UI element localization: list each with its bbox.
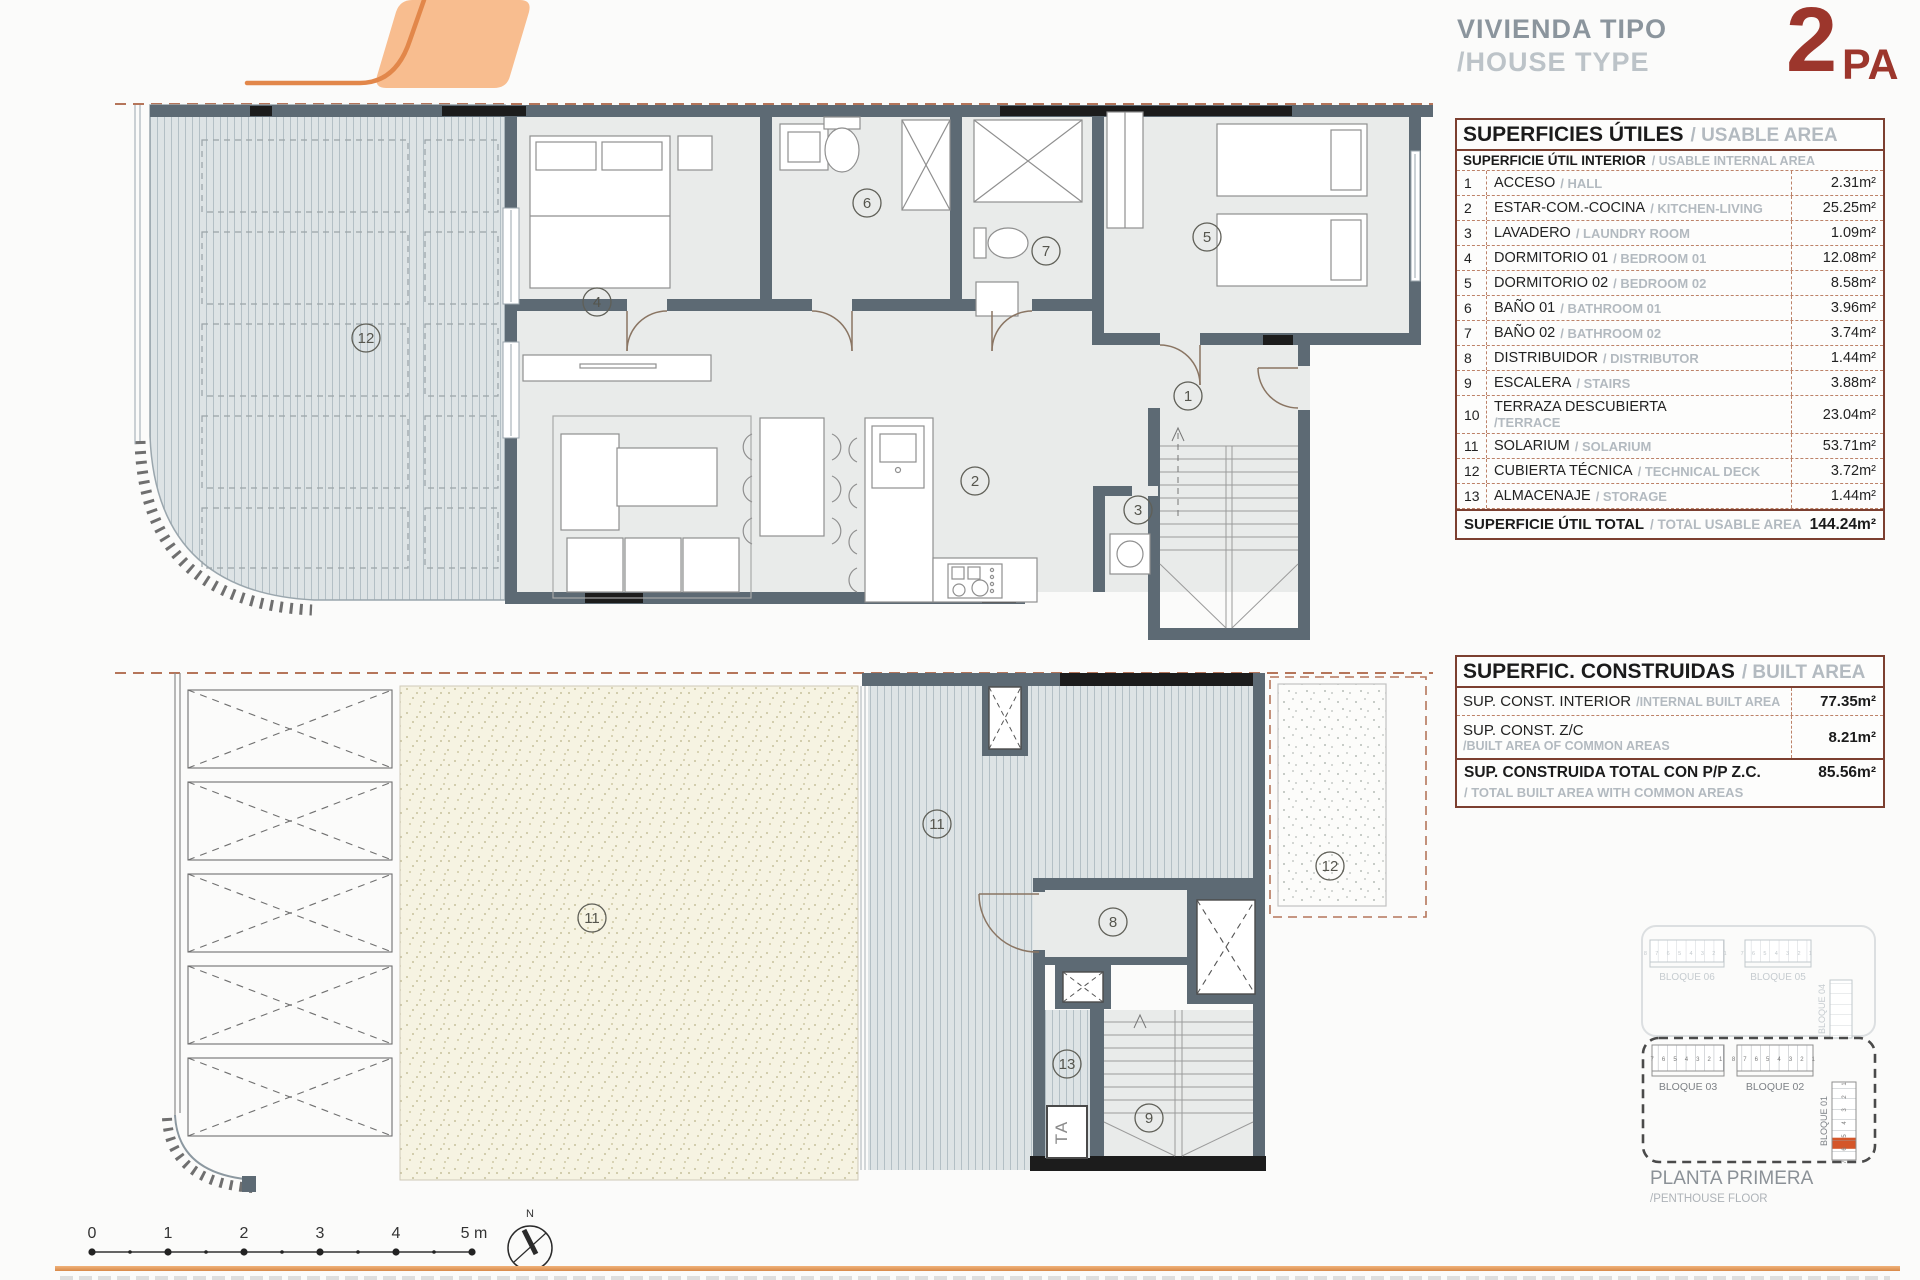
row-name-en: / BEDROOM 01 [1613,251,1706,266]
block04-label: BLOQUE 04 [1817,984,1827,1034]
row-name-en: / TECHNICAL DECK [1638,464,1761,479]
north-label: N [526,1208,534,1220]
row-num: 10 [1457,396,1487,433]
row-name-en: / SOLARIUM [1575,439,1652,454]
row-num: 5 [1457,271,1487,295]
row-name-en: /TERRACE [1494,415,1560,430]
boundary-curve [175,1115,255,1180]
row-num: 8 [1457,346,1487,370]
svg-text:5 m: 5 m [461,1225,488,1242]
row-value: 53.71m² [1791,434,1883,458]
table-row: 13ALMACENAJE/ STORAGE1.44m² [1457,484,1883,509]
row-value: 8.21m² [1791,716,1883,758]
row-value: 3.72m² [1791,459,1883,483]
table-row: 6BAÑO 01/ BATHROOM 013.96m² [1457,296,1883,321]
footer-fineprint-strip [60,1276,1890,1280]
table-row: 9ESCALERA/ STAIRS3.88m² [1457,371,1883,396]
block05-label: BLOQUE 05 [1750,972,1806,983]
keyplan-floor-es: PLANTA PRIMERA [1650,1168,1814,1189]
row-name-es: SUP. CONST. INTERIOR [1463,693,1631,710]
row-name-es: DORMITORIO 01 [1494,250,1608,266]
usable-area-table: SUPERFICIES ÚTILES / USABLE AREA SUPERFI… [1455,118,1885,540]
total-label-en: / TOTAL USABLE AREA [1650,517,1804,532]
block02-label: BLOQUE 02 [1746,1081,1805,1093]
door-gap [1033,892,1045,950]
table-row: SUP. CONST. Z/C /BUILT AREA OF COMMON AR… [1457,716,1883,758]
row-name-en: / DISTRIBUTOR [1603,351,1699,366]
row-num: 6 [1457,296,1487,320]
svg-text:3: 3 [316,1225,325,1242]
row-num: 1 [1457,171,1487,195]
row-name-es: DORMITORIO 02 [1494,275,1608,291]
svg-text:2: 2 [971,473,979,490]
table-row: SUP. CONST. INTERIOR /INTERNAL BUILT ARE… [1457,688,1883,716]
block02-units: 8 7 6 5 4 3 2 1 [1732,1057,1818,1063]
svg-text:8: 8 [1109,914,1117,931]
table-row: 11SOLARIUM/ SOLARIUM53.71m² [1457,434,1883,459]
block03-units: 7 6 5 4 3 2 1 [1651,1057,1726,1063]
row-name-en: / KITCHEN-LIVING [1650,201,1763,216]
table-title-en: / BUILT AREA [1742,662,1866,684]
svg-text:2: 2 [240,1225,249,1242]
table-row: 2ESTAR-COM.-COCINA/ KITCHEN-LIVING25.25m… [1457,196,1883,221]
table-row: 3LAVADERO/ LAUNDRY ROOM1.09m² [1457,221,1883,246]
table-row: 5DORMITORIO 02/ BEDROOM 028.58m² [1457,271,1883,296]
row-name-en: / BATHROOM 02 [1560,326,1661,341]
row-num: 13 [1457,484,1487,508]
row-name-en: /INTERNAL BUILT AREA [1636,695,1780,709]
row-name-en: / STORAGE [1596,489,1667,504]
table-row: 10TERRAZA DESCUBIERTA/TERRACE23.04m² [1457,396,1883,434]
table-title-en: / USABLE AREA [1691,125,1838,147]
svg-text:12: 12 [358,330,375,347]
svg-text:1: 1 [1184,388,1192,405]
subtitle-es: SUPERFICIE ÚTIL INTERIOR [1463,153,1646,168]
house-type-number: 2 [1786,0,1837,86]
usable-table-subheader: SUPERFICIE ÚTIL INTERIOR / USABLE INTERN… [1457,151,1883,171]
row-num: 4 [1457,246,1487,270]
laundry-washer [1110,534,1150,574]
built-total-row: SUP. CONSTRUIDA TOTAL CON P/P Z.C. 85.56… [1457,758,1883,806]
row-value: 1.44m² [1791,484,1883,508]
block06-units: 8 7 6 5 4 3 2 1 [1644,951,1730,957]
row-value: 3.96m² [1791,296,1883,320]
row-name-en: / HALL [1560,176,1602,191]
row-name-es: ALMACENAJE [1494,488,1591,504]
solarium-floor-plan: TA 11 11 12 8 13 9 [20,660,1440,1200]
row-value: 1.09m² [1791,221,1883,245]
table-row: 7BAÑO 02/ BATHROOM 023.74m² [1457,321,1883,346]
row-num: 7 [1457,321,1487,345]
svg-text:11: 11 [929,816,945,833]
row-name-es: ACCESO [1494,175,1555,191]
row-name-en: / BEDROOM 02 [1613,276,1706,291]
svg-text:7: 7 [1042,243,1050,260]
doc-title-es: VIVIENDA TIPO [1457,14,1667,45]
scale-labels: 0 1 2 3 4 5 m [88,1225,488,1242]
row-name-es: ESCALERA [1494,375,1571,391]
row-value: 23.04m² [1791,396,1883,433]
row-name-en: / STAIRS [1576,376,1630,391]
row-name-es: BAÑO 02 [1494,325,1555,341]
floorplan-sheet: { "header": { "title_line1": "VIVIENDA T… [0,0,1920,1280]
svg-text:9: 9 [1145,1110,1153,1127]
row-name-es: BAÑO 01 [1494,300,1555,316]
doc-title-en: /HOUSE TYPE [1457,47,1650,78]
table-row: 12CUBIERTA TÉCNICA/ TECHNICAL DECK3.72m² [1457,459,1883,484]
row-value: 3.74m² [1791,321,1883,345]
usable-table-header: SUPERFICIES ÚTILES / USABLE AREA [1457,120,1883,151]
row-value: 77.35m² [1791,688,1883,715]
svg-text:6: 6 [863,195,871,212]
total-label-es: SUPERFICIE ÚTIL TOTAL [1464,516,1644,533]
block03-label: BLOQUE 03 [1659,1081,1718,1093]
solarium-sand-area [400,686,858,1180]
total-label-en: / TOTAL BUILT AREA WITH COMMON AREAS [1464,785,1876,800]
subtitle-en: / USABLE INTERNAL AREA [1652,154,1815,168]
built-area-table: SUPERFIC. CONSTRUIDAS / BUILT AREA SUP. … [1455,655,1885,808]
footer-orange-rule [55,1266,1900,1271]
faded-blocks: 8 7 6 5 4 3 2 1 BLOQUE 06 7 6 5 4 3 2 1 … [1644,940,1852,1038]
row-name-es: TERRAZA DESCUBIERTA [1494,399,1667,415]
table-row: 1ACCESO/ HALL2.31m² [1457,171,1883,196]
usable-total-row: SUPERFICIE ÚTIL TOTAL / TOTAL USABLE ARE… [1457,509,1883,538]
crossed-panel-boxes [188,690,392,1136]
row-num: 9 [1457,371,1487,395]
row-name-es: DISTRIBUIDOR [1494,350,1598,366]
svg-text:5: 5 [1203,229,1211,246]
upper-floor-plan: 12 4 6 7 5 1 2 3 [112,96,1442,656]
row-num: 2 [1457,196,1487,220]
total-value: 144.24m² [1810,516,1876,534]
scale-bar: 0 1 2 3 4 5 m [70,1222,490,1267]
row-name-en: / BATHROOM 01 [1560,301,1661,316]
row-name-es: ESTAR-COM.-COCINA [1494,200,1645,216]
svg-text:4: 4 [593,294,601,311]
table-title-es: SUPERFIC. CONSTRUIDAS [1463,660,1735,684]
wall-stub [242,1176,256,1192]
row-name-es: SOLARIUM [1494,438,1570,454]
row-name-es: SUP. CONST. Z/C [1463,722,1584,739]
row-value: 2.31m² [1791,171,1883,195]
ta-label: TA [1052,1120,1071,1144]
row-num: 12 [1457,459,1487,483]
total-label-es: SUP. CONSTRUIDA TOTAL CON P/P Z.C. [1464,764,1818,782]
kitchen-stove [933,558,1037,602]
row-num: 3 [1457,221,1487,245]
active-blocks: 7 6 5 4 3 2 1 BLOQUE 03 8 7 6 5 4 3 2 1 … [1651,1045,1856,1164]
block05-units: 7 6 5 4 3 2 1 [1741,951,1816,957]
svg-text:12: 12 [1322,858,1339,875]
row-num: 11 [1457,434,1487,458]
block01-label: BLOQUE 01 [1819,1096,1829,1146]
svg-text:11: 11 [584,910,600,927]
svg-text:0: 0 [88,1225,97,1242]
svg-text:1: 1 [164,1225,173,1242]
keyplan-floor-en: /PENTHOUSE FLOOR [1650,1193,1768,1205]
stairwell-floor [1104,1010,1253,1156]
table-row: 4DORMITORIO 01/ BEDROOM 0112.08m² [1457,246,1883,271]
row-name-en: / LAUNDRY ROOM [1576,226,1690,241]
svg-text:3: 3 [1134,502,1142,519]
site-key-plan: 8 7 6 5 4 3 2 1 BLOQUE 06 7 6 5 4 3 2 1 … [1630,920,1920,1240]
logo-parallelogram [376,0,529,88]
solarium-deck-area [868,686,1253,878]
row-value: 8.58m² [1791,271,1883,295]
row-value: 1.44m² [1791,346,1883,370]
solarium-deck-area [868,878,1033,1170]
row-value: 3.88m² [1791,371,1883,395]
svg-text:13: 13 [1059,1056,1076,1073]
row-name-es: LAVADERO [1494,225,1571,241]
row-name-es: CUBIERTA TÉCNICA [1494,463,1633,479]
svg-text:4: 4 [392,1225,401,1242]
total-value: 85.56m² [1818,764,1876,782]
built-table-header: SUPERFIC. CONSTRUIDAS / BUILT AREA [1457,657,1883,688]
deck-area [150,105,505,600]
table-title-es: SUPERFICIES ÚTILES [1463,123,1684,147]
brand-logo-icon [180,0,540,95]
row-value: 25.25m² [1791,196,1883,220]
block06-label: BLOQUE 06 [1659,972,1715,983]
row-name-en: /BUILT AREA OF COMMON AREAS [1463,739,1670,753]
row-value: 12.08m² [1791,246,1883,270]
house-type-suffix: PA [1842,44,1899,87]
table-row: 8DISTRIBUIDOR/ DISTRIBUTOR1.44m² [1457,346,1883,371]
block01-units: 7 6 5 4 3 2 1 [1842,1078,1848,1163]
